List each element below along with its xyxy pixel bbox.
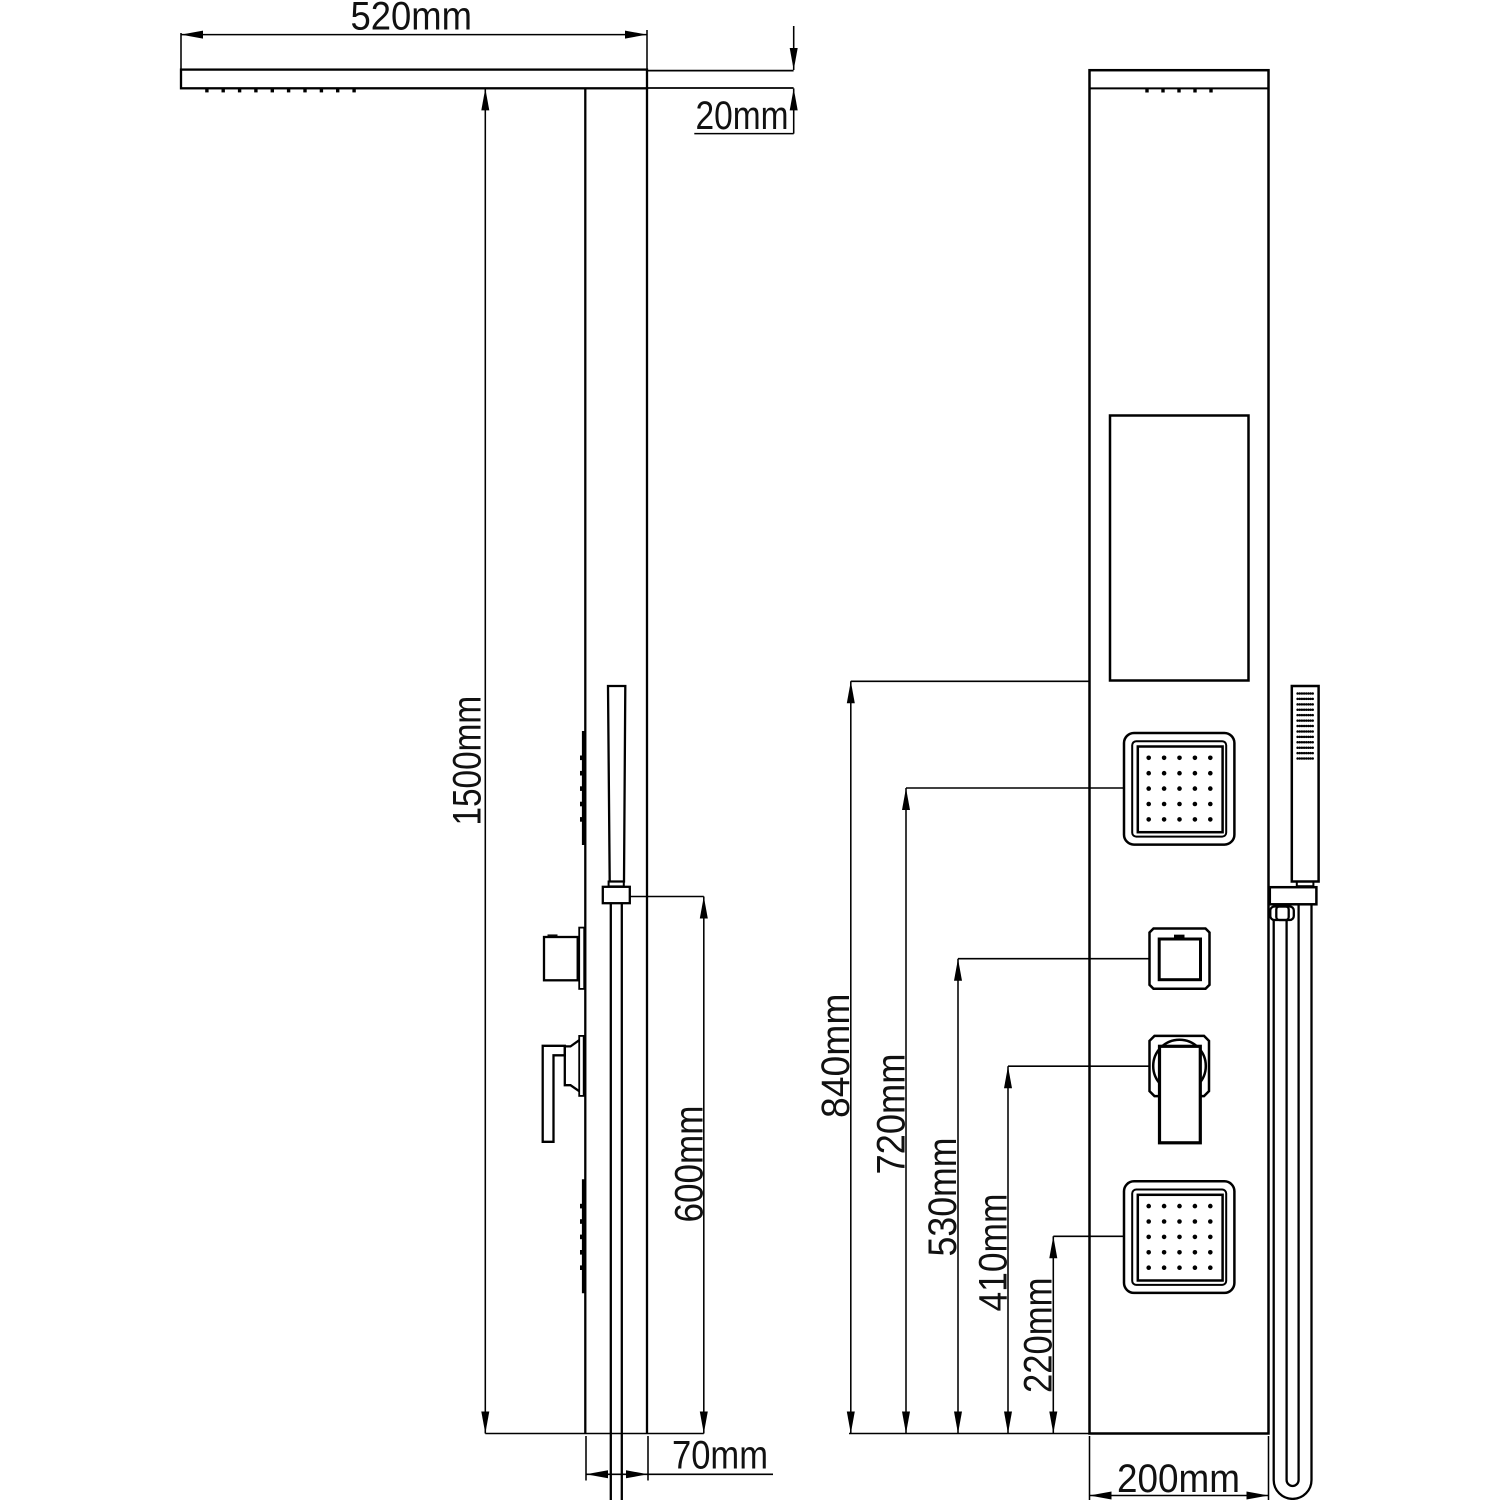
svg-text:1500mm: 1500mm xyxy=(446,696,490,826)
svg-text:520mm: 520mm xyxy=(351,0,473,39)
svg-text:20mm: 20mm xyxy=(696,94,789,138)
svg-text:200mm: 200mm xyxy=(1117,1457,1240,1500)
svg-text:70mm: 70mm xyxy=(672,1434,768,1478)
svg-text:600mm: 600mm xyxy=(668,1106,712,1223)
